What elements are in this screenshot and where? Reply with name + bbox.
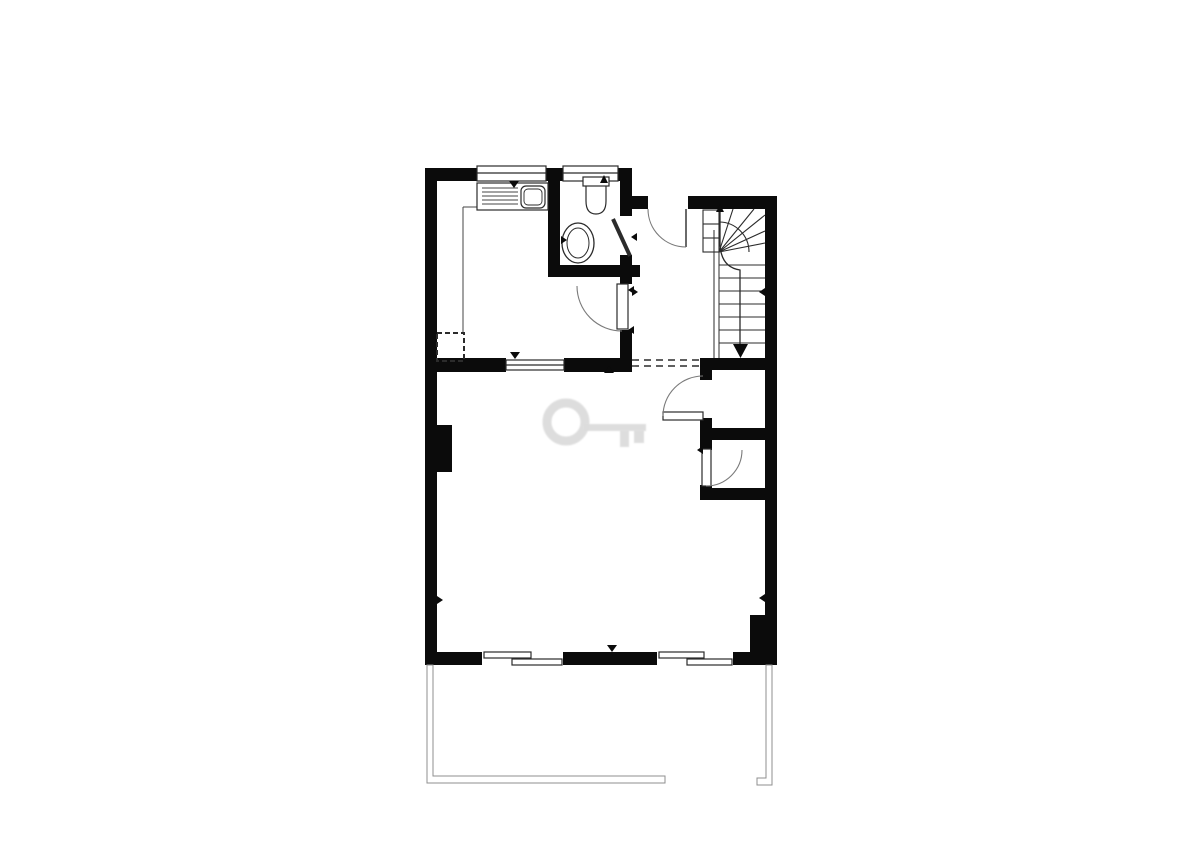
wall-hall-top-right xyxy=(688,196,765,209)
wall-right xyxy=(765,196,777,665)
kitchen-storage-dashed-box xyxy=(437,333,464,361)
closet-door-2-leaf xyxy=(702,449,711,486)
watermark-key-bow xyxy=(547,403,585,441)
sliding-door-left-panel-outer xyxy=(484,652,531,658)
entrance-door-swing xyxy=(648,209,686,247)
stair-winder-line-1 xyxy=(719,209,733,252)
wall-tick-left xyxy=(437,596,443,604)
stair-wall-tick xyxy=(759,288,765,296)
wall-bathroom-left xyxy=(548,168,560,277)
kitchen-door-swing xyxy=(577,286,622,331)
kitchen-door-tick-1 xyxy=(628,286,634,294)
wall-top-right-of-bath xyxy=(618,168,632,181)
kitchen-door-leaf xyxy=(617,284,628,329)
wall-kitchen-bottom-right xyxy=(567,358,632,372)
bottom-wall-marker xyxy=(607,645,617,652)
bathroom-door-leaf xyxy=(613,219,630,256)
serving-hatch-cap-left xyxy=(500,358,506,372)
wall-top-kitchen xyxy=(425,168,477,181)
wall-bathroom-right-top xyxy=(620,180,632,216)
watermark-key-tooth-2 xyxy=(634,430,644,443)
wall-bottom-middle xyxy=(563,652,657,665)
watermark-key-shaft xyxy=(584,424,646,431)
wash-basin-inner xyxy=(567,228,589,258)
terrace-railing-right xyxy=(757,665,772,785)
closet-door-1-leaf xyxy=(663,412,703,420)
floor-plan-page xyxy=(0,0,1200,849)
chimney-pillar xyxy=(437,425,452,472)
kitchen-sink-bowl-inner xyxy=(524,189,542,205)
stair-upper-treads xyxy=(703,210,719,252)
watermark-key-tooth-1 xyxy=(620,430,629,447)
sliding-door-right-panel-outer xyxy=(659,652,704,658)
serving-hatch-cap-right xyxy=(564,358,570,372)
wall-hall-top-left xyxy=(632,196,648,209)
bathroom-door-arrow xyxy=(631,233,637,241)
basin-tap xyxy=(561,236,567,244)
floor-plan-svg xyxy=(0,0,1200,849)
wall-bottom-right-step xyxy=(750,615,777,655)
wall-bathroom-right-bottom xyxy=(620,255,632,277)
toilet-bowl xyxy=(586,186,606,214)
terrace-railing-left xyxy=(427,665,665,783)
wall-closet1-left-upper xyxy=(700,366,712,380)
stair-direction-arrow-down xyxy=(733,344,748,358)
wall-bottom-left xyxy=(425,652,482,665)
serving-hatch-marker xyxy=(510,352,520,359)
wall-kitchen-hall-upper xyxy=(620,277,632,284)
wall-left xyxy=(425,168,437,665)
sliding-door-left-panel-inner xyxy=(512,659,562,665)
wall-tick-right xyxy=(759,594,765,602)
sliding-door-right-panel-inner xyxy=(687,659,732,665)
closet-door-1-swing xyxy=(663,376,703,416)
